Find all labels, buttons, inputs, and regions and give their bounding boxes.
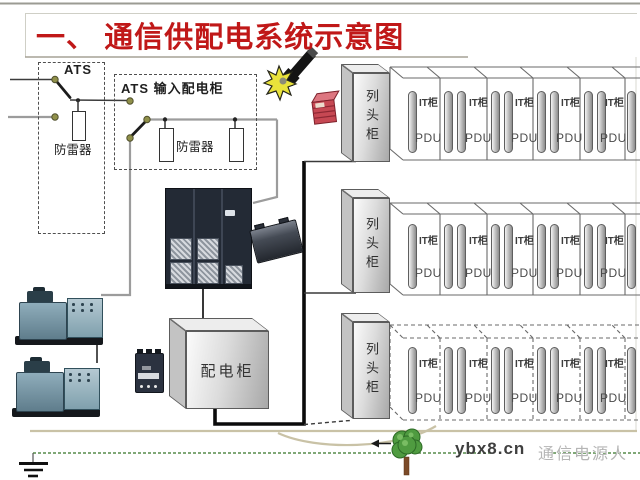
it-cabinet-label: IT柜 — [469, 232, 488, 247]
rack-box-edge — [474, 325, 487, 338]
rack-box-edge — [427, 325, 440, 338]
pdu-bar — [584, 224, 593, 289]
row-head-cabinet-left-face — [341, 313, 353, 419]
it-cabinet-label: IT柜 — [419, 94, 438, 109]
pdu-bar — [491, 91, 500, 153]
rack-box-edge — [612, 67, 625, 78]
circuit-breaker-image — [133, 347, 164, 395]
rack-box-edge — [520, 203, 533, 214]
diesel-generator-image — [13, 286, 107, 348]
rack-box-edge — [390, 203, 403, 214]
rack-box-edge — [612, 203, 625, 214]
pdu-bar — [627, 224, 636, 289]
pdu-label: PDU — [415, 266, 442, 280]
row-head-cabinet-label: 列头柜 — [353, 203, 390, 288]
pdu-label: PDU — [511, 266, 538, 280]
pdu-bar — [537, 91, 546, 153]
red-toolbox-icon — [311, 91, 342, 124]
rack-box-edge — [390, 284, 403, 295]
left-arrow-icon — [371, 440, 391, 448]
rack-box-edge — [427, 67, 440, 78]
rack-box-edge — [474, 203, 487, 214]
pdu-bar — [444, 224, 453, 289]
it-cabinet-label: IT柜 — [469, 355, 488, 370]
pdu-label: PDU — [415, 391, 442, 405]
it-cabinet-label: IT柜 — [605, 94, 624, 109]
row-head-cabinet-label: 列头柜 — [353, 327, 390, 414]
rack-box-edge — [390, 67, 403, 78]
surge-arrester-box — [229, 128, 244, 162]
ups-badge — [225, 210, 235, 216]
diesel-generator-image — [10, 356, 104, 420]
surge-arrester-label: 防雷器 — [176, 136, 214, 155]
pdu-bar — [584, 347, 593, 414]
it-cabinet-label: IT柜 — [515, 94, 534, 109]
ats-box-label: ATS — [64, 62, 92, 77]
rack-box-edge — [390, 149, 403, 160]
rack-box-edge — [390, 325, 403, 338]
it-cabinet-label: IT柜 — [561, 232, 580, 247]
it-cabinet-label: IT柜 — [469, 94, 488, 109]
it-cabinet-label: IT柜 — [515, 355, 534, 370]
input-cabinet-label: ATS 输入配电柜 — [121, 78, 224, 97]
pdu-label: PDU — [556, 391, 583, 405]
row-head-cabinet-label: 列头柜 — [353, 78, 390, 157]
rack-box-edge — [390, 407, 403, 420]
rack-box-edge — [427, 203, 440, 214]
distribution-cabinet-left-face — [169, 318, 186, 409]
pdu-bar — [627, 347, 636, 414]
ground-symbol — [19, 453, 48, 476]
rack-box-edge — [612, 325, 625, 338]
slide-canvas: 一、 通信供配电系统示意图 ATS 防雷器 ATS 输入配电柜 防雷器 — [0, 0, 640, 480]
pdu-bar — [537, 347, 546, 414]
distribution-cabinet-label: 配电柜 — [186, 360, 269, 381]
pdu-label: PDU — [600, 131, 627, 145]
pdu-label: PDU — [465, 391, 492, 405]
it-cabinet-label: IT柜 — [515, 232, 534, 247]
row-head-cabinet-left-face — [341, 64, 353, 162]
pdu-bar — [627, 91, 636, 153]
pdu-bar — [584, 91, 593, 153]
pdu-label: PDU — [556, 266, 583, 280]
pdu-label: PDU — [415, 131, 442, 145]
row-head-cabinet-left-face — [341, 189, 353, 293]
it-cabinet-label: IT柜 — [419, 355, 438, 370]
it-cabinet-label: IT柜 — [605, 232, 624, 247]
it-cabinet-label: IT柜 — [561, 94, 580, 109]
pdu-label: PDU — [511, 131, 538, 145]
rack-box-edge — [474, 67, 487, 78]
pdu-bar — [537, 224, 546, 289]
surge-arrester-box — [72, 111, 86, 141]
pdu-label: PDU — [465, 266, 492, 280]
surge-arrester-label: 防雷器 — [54, 139, 92, 158]
rack-box-edge — [567, 203, 580, 214]
branch-row3-dashed — [304, 421, 350, 425]
pdu-bar — [444, 91, 453, 153]
pdu-bar — [491, 224, 500, 289]
surge-arrester-box — [159, 128, 174, 162]
rack-box-edge — [520, 325, 533, 338]
it-cabinet-label: IT柜 — [605, 355, 624, 370]
it-cabinet-label: IT柜 — [561, 355, 580, 370]
watermark-site: ybx8.cn — [455, 439, 525, 459]
pdu-label: PDU — [600, 266, 627, 280]
pdu-label: PDU — [556, 131, 583, 145]
pdu-bar — [491, 347, 500, 414]
pdu-label: PDU — [465, 131, 492, 145]
pdu-bar — [444, 347, 453, 414]
ups-cabinet-image — [165, 188, 252, 289]
rack-box-edge — [520, 67, 533, 78]
watermark-brand: 通信电源人 — [538, 440, 628, 464]
tree-icon — [392, 429, 422, 475]
rack-box-edge — [567, 67, 580, 78]
pdu-label: PDU — [600, 391, 627, 405]
it-cabinet-label: IT柜 — [419, 232, 438, 247]
pdu-label: PDU — [511, 391, 538, 405]
rack-box-edge — [567, 325, 580, 338]
page-title: 一、 通信供配电系统示意图 — [36, 14, 404, 56]
